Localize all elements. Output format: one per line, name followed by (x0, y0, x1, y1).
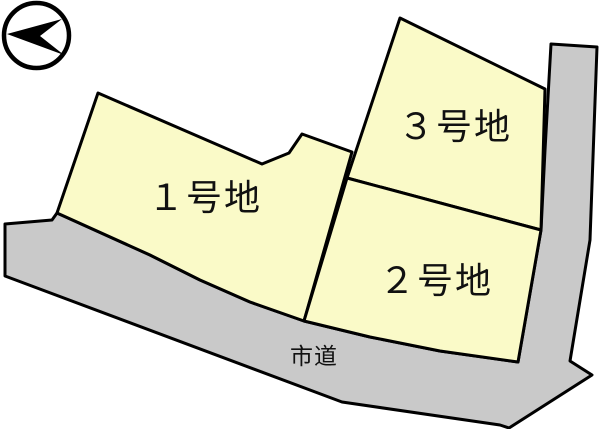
road-label: 市道 (290, 343, 338, 369)
plot-map: １号地 ２号地 ３号地 市道 (0, 0, 600, 429)
plot-1-label: １号地 (148, 177, 262, 218)
plot-map-svg: １号地 ２号地 ３号地 市道 (0, 0, 600, 429)
plot-2-label: ２号地 (379, 260, 493, 301)
plot-3-label: ３号地 (398, 106, 512, 147)
compass-arrow (7, 19, 64, 55)
north-arrow-icon (4, 3, 69, 68)
